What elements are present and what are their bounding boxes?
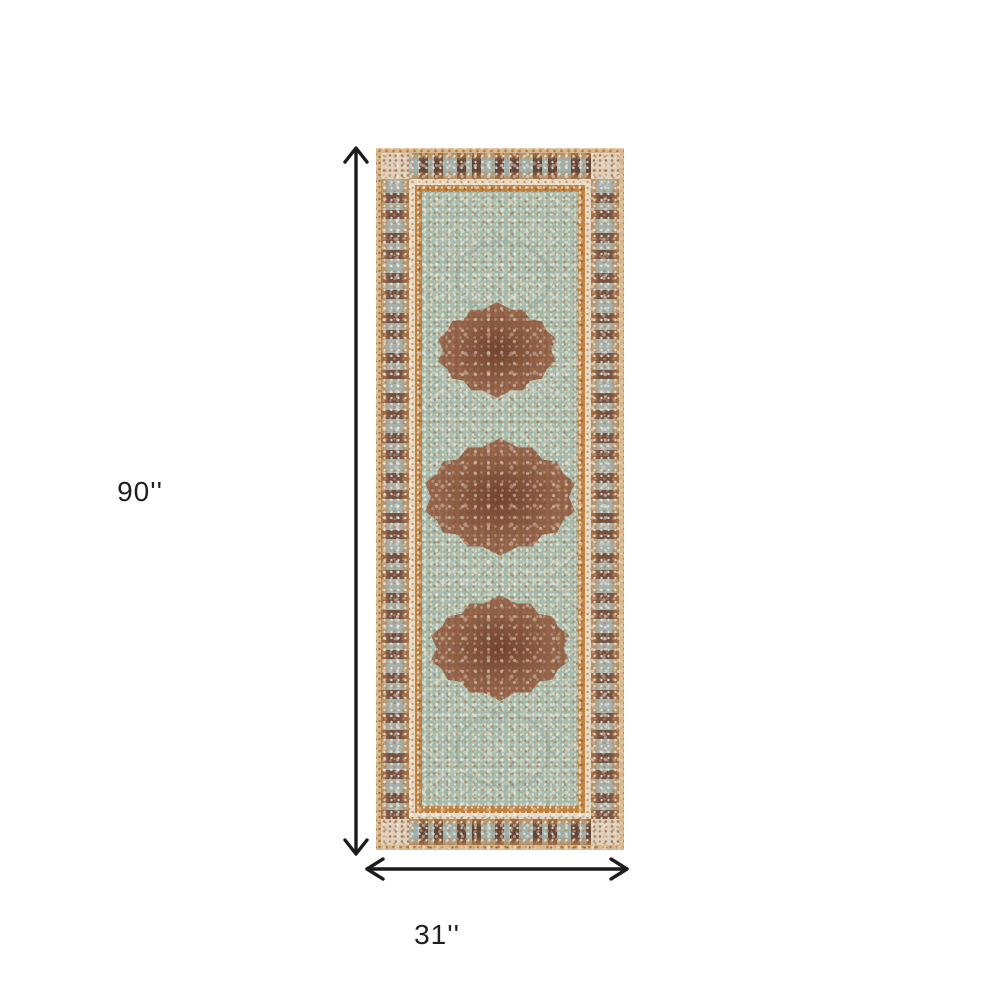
rug-border-left-motifs bbox=[381, 179, 409, 819]
rug-field bbox=[422, 192, 578, 806]
rug-main-border bbox=[381, 153, 619, 845]
rug-border-right-motifs bbox=[591, 179, 619, 819]
rug-border-corner bbox=[381, 819, 409, 845]
rug-medallion-bottom bbox=[431, 595, 569, 701]
rug-border-corner bbox=[381, 153, 409, 179]
rug-image bbox=[376, 148, 624, 850]
rug-field-ornament bbox=[455, 240, 551, 316]
rug-medallion-center bbox=[425, 438, 575, 556]
rug-border-bottom-motifs bbox=[381, 819, 619, 845]
product-dimension-image: 90'' bbox=[0, 0, 1000, 1000]
width-dimension-label: 31'' bbox=[397, 918, 477, 952]
height-dimension-arrow-icon bbox=[340, 141, 372, 861]
rug-border-corner bbox=[591, 819, 619, 845]
rug-border-top-motifs bbox=[381, 153, 619, 179]
rug-selvedge-edge bbox=[376, 148, 624, 850]
height-dimension-label: 90'' bbox=[100, 475, 180, 509]
rug-orange-guard-stripe bbox=[415, 185, 585, 813]
rug-field-ornament bbox=[455, 712, 551, 788]
rug-border-corner bbox=[591, 153, 619, 179]
rug-cream-guard-band bbox=[409, 179, 591, 819]
width-dimension-arrow-icon bbox=[359, 855, 637, 885]
rug-medallion-top bbox=[438, 302, 556, 398]
